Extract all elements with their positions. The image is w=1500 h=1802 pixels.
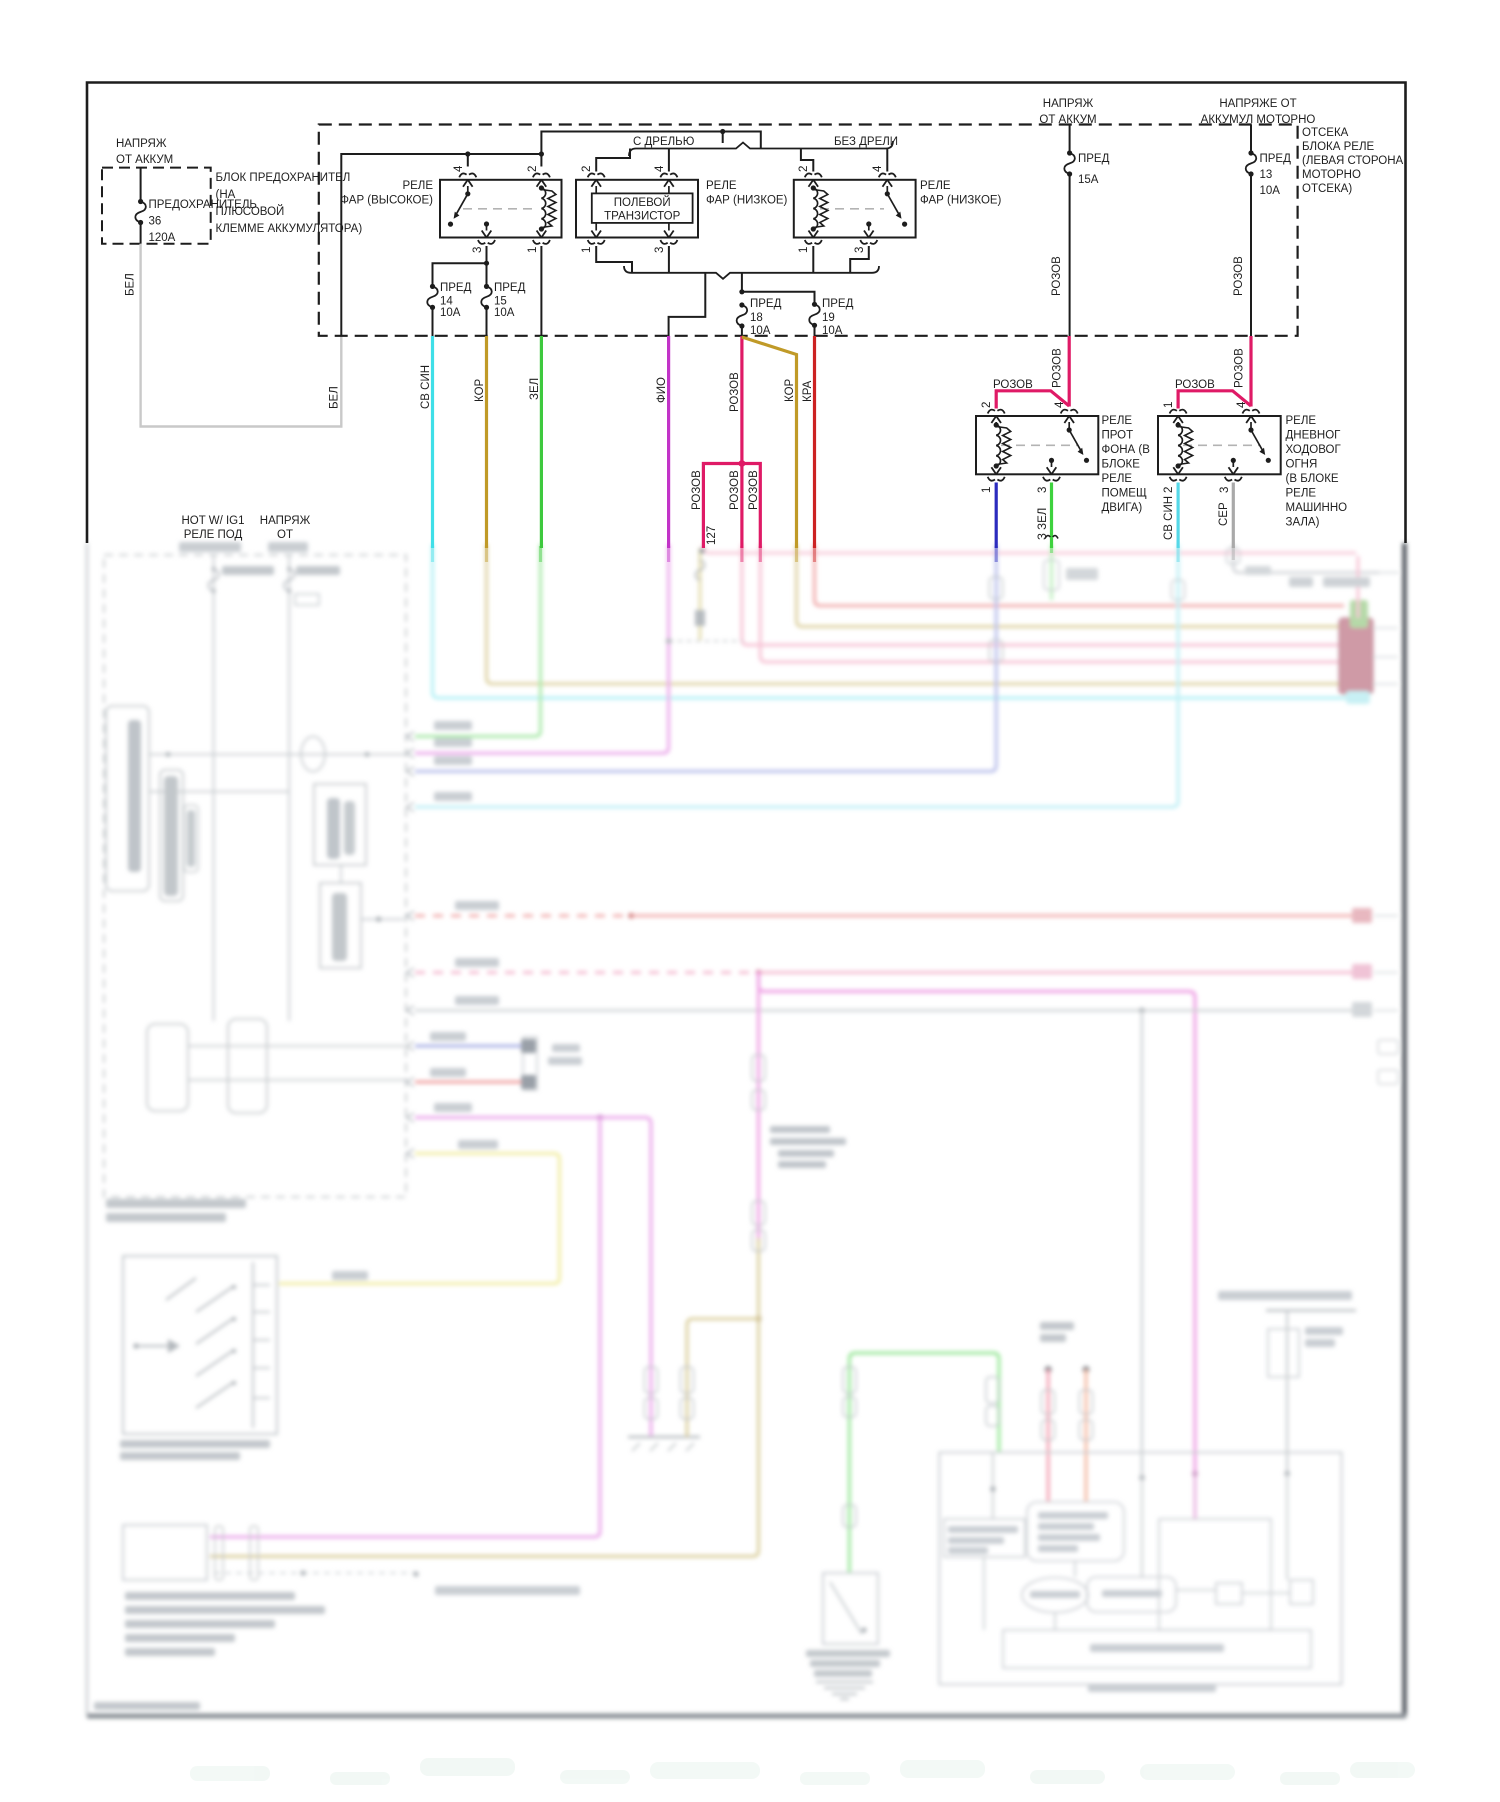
svg-text:СВ СИН: СВ СИН (1163, 496, 1175, 540)
svg-text:ДВИГА): ДВИГА) (1102, 502, 1143, 514)
svg-text:РОЗОВ: РОЗОВ (729, 470, 741, 510)
svg-text:15А: 15А (1078, 174, 1099, 186)
svg-text:14: 14 (440, 296, 453, 308)
svg-text:БЛОКЕ: БЛОКЕ (1102, 459, 1141, 471)
svg-text:НАПРЯЖ: НАПРЯЖ (1043, 98, 1094, 110)
svg-text:2: 2 (1163, 487, 1175, 493)
svg-text:2: 2 (798, 166, 810, 172)
svg-text:3: 3 (654, 247, 666, 253)
svg-text:3: 3 (472, 247, 484, 253)
svg-text:ЗАЛА): ЗАЛА) (1286, 517, 1320, 529)
svg-text:ХОДОВОГ: ХОДОВОГ (1286, 444, 1342, 456)
svg-text:НАПРЯЖЕ ОТ: НАПРЯЖЕ ОТ (1219, 98, 1296, 110)
svg-text:1: 1 (581, 247, 593, 253)
svg-text:РЕЛЕ: РЕЛЕ (706, 180, 737, 192)
svg-text:ПРЕД: ПРЕД (494, 282, 526, 294)
svg-text:ФИО: ФИО (656, 377, 668, 403)
svg-text:РОЗОВ: РОЗОВ (1175, 379, 1215, 391)
svg-text:БЛОКА РЕЛЕ: БЛОКА РЕЛЕ (1302, 141, 1374, 153)
svg-text:СВ СИН: СВ СИН (420, 365, 432, 409)
svg-text:4: 4 (453, 165, 465, 172)
svg-text:РОЗОВ: РОЗОВ (993, 379, 1033, 391)
svg-text:127: 127 (706, 526, 718, 545)
svg-text:(В БЛОКЕ: (В БЛОКЕ (1286, 473, 1339, 485)
svg-text:КРА: КРА (802, 380, 814, 402)
svg-text:ОТСЕКА: ОТСЕКА (1302, 127, 1349, 139)
svg-text:13: 13 (1260, 169, 1273, 181)
svg-text:ФАР (НИЗКОЕ): ФАР (НИЗКОЕ) (920, 195, 1002, 207)
svg-text:БЕЛ: БЕЛ (125, 273, 137, 296)
svg-text:2: 2 (581, 166, 593, 172)
svg-text:РЕЛЕ: РЕЛЕ (1286, 415, 1317, 427)
svg-text:КЛЕММЕ АККУМУЛЯТОРА): КЛЕММЕ АККУМУЛЯТОРА) (216, 223, 363, 235)
svg-text:2: 2 (981, 402, 993, 408)
svg-text:РОЗОВ: РОЗОВ (729, 372, 741, 412)
svg-text:ПОЛЕВОЙ: ПОЛЕВОЙ (614, 196, 671, 209)
svg-text:ФОНА (В: ФОНА (В (1102, 444, 1151, 456)
svg-text:АККУМУЛ МОТОРНО: АККУМУЛ МОТОРНО (1201, 114, 1316, 126)
svg-text:2: 2 (527, 166, 539, 172)
svg-text:4: 4 (654, 165, 666, 172)
svg-text:19: 19 (822, 312, 835, 324)
svg-text:ОГНЯ: ОГНЯ (1286, 459, 1318, 471)
svg-text:ДНЕВНОГ: ДНЕВНОГ (1286, 430, 1342, 442)
svg-text:РЕЛЕ: РЕЛЕ (920, 180, 951, 192)
svg-text:ПРЕД: ПРЕД (1078, 153, 1110, 165)
svg-text:36: 36 (149, 216, 162, 228)
svg-text:БЕЛ: БЕЛ (329, 386, 341, 409)
svg-text:РОЗОВ: РОЗОВ (748, 470, 760, 510)
svg-text:ЗЕЛ: ЗЕЛ (529, 378, 541, 400)
svg-text:3: 3 (1037, 487, 1049, 493)
svg-text:10А: 10А (494, 307, 515, 319)
svg-text:КОР: КОР (474, 378, 486, 402)
svg-text:КОР: КОР (784, 378, 796, 402)
svg-text:120А: 120А (149, 232, 176, 244)
svg-text:1: 1 (798, 247, 810, 253)
svg-text:4: 4 (872, 165, 884, 172)
svg-text:3: 3 (1219, 487, 1231, 493)
svg-text:10А: 10А (440, 307, 461, 319)
svg-text:РЕЛЕ: РЕЛЕ (1286, 488, 1317, 500)
svg-text:РОЗОВ: РОЗОВ (1052, 348, 1064, 388)
svg-text:ФАР (ВЫСОКОЕ): ФАР (ВЫСОКОЕ) (340, 195, 433, 207)
svg-text:10А: 10А (750, 325, 771, 337)
svg-text:ПРЕД: ПРЕД (1260, 153, 1292, 165)
svg-text:ПЛЮСОВОЙ: ПЛЮСОВОЙ (216, 205, 285, 218)
svg-text:СЕР: СЕР (1218, 502, 1230, 526)
svg-text:З ЗЕЛ: З ЗЕЛ (1037, 508, 1049, 540)
svg-text:С ДРЕЛЬЮ: С ДРЕЛЬЮ (633, 136, 695, 148)
svg-text:РОЗОВ: РОЗОВ (1233, 256, 1245, 296)
svg-text:ОТ АККУМ: ОТ АККУМ (116, 154, 173, 166)
svg-text:15: 15 (494, 296, 507, 308)
svg-text:ОТ АККУМ: ОТ АККУМ (1039, 114, 1096, 126)
svg-text:4: 4 (1236, 401, 1248, 408)
svg-text:РЕЛЕ: РЕЛЕ (402, 180, 433, 192)
svg-text:РЕЛЕ ПОД: РЕЛЕ ПОД (184, 529, 243, 541)
svg-text:ОТ: ОТ (277, 529, 293, 541)
svg-text:МАШИННО: МАШИННО (1286, 502, 1348, 514)
svg-text:БЕЗ ДРЕЛИ: БЕЗ ДРЕЛИ (834, 136, 898, 148)
svg-text:ПРЕД: ПРЕД (750, 298, 782, 310)
svg-text:10А: 10А (822, 325, 843, 337)
svg-text:ПРОТ: ПРОТ (1102, 430, 1134, 442)
svg-text:РОЗОВ: РОЗОВ (691, 470, 703, 510)
svg-text:1: 1 (981, 487, 993, 493)
svg-text:(НА: (НА (216, 189, 236, 201)
svg-text:ПРЕД: ПРЕД (822, 298, 854, 310)
svg-text:ФАР (НИЗКОЕ): ФАР (НИЗКОЕ) (706, 195, 788, 207)
svg-text:ПРЕД: ПРЕД (440, 282, 472, 294)
svg-text:НАПРЯЖ: НАПРЯЖ (116, 138, 167, 150)
svg-text:(ЛЕВАЯ СТОРОНА: (ЛЕВАЯ СТОРОНА (1302, 155, 1404, 167)
svg-text:3: 3 (854, 247, 866, 253)
svg-text:ТРАНЗИСТОР: ТРАНЗИСТОР (604, 211, 680, 223)
svg-text:БЛОК ПРЕДОХРАНИТЕЛ: БЛОК ПРЕДОХРАНИТЕЛ (216, 172, 351, 184)
svg-text:РЕЛЕ: РЕЛЕ (1102, 415, 1133, 427)
svg-text:НАПРЯЖ: НАПРЯЖ (260, 515, 311, 527)
svg-text:ОТСЕКА): ОТСЕКА) (1302, 183, 1352, 195)
svg-text:10А: 10А (1260, 185, 1281, 197)
svg-text:РЕЛЕ: РЕЛЕ (1102, 473, 1133, 485)
svg-text:1: 1 (527, 247, 539, 253)
svg-text:РОЗОВ: РОЗОВ (1051, 256, 1063, 296)
svg-text:РОЗОВ: РОЗОВ (1234, 348, 1246, 388)
svg-text:ПОМЕЩ: ПОМЕЩ (1102, 488, 1147, 500)
svg-text:1: 1 (1163, 402, 1175, 408)
svg-text:18: 18 (750, 312, 763, 324)
svg-text:HOT W/ IG1: HOT W/ IG1 (181, 515, 244, 527)
svg-text:МОТОРНО: МОТОРНО (1302, 169, 1361, 181)
svg-text:4: 4 (1054, 401, 1066, 408)
